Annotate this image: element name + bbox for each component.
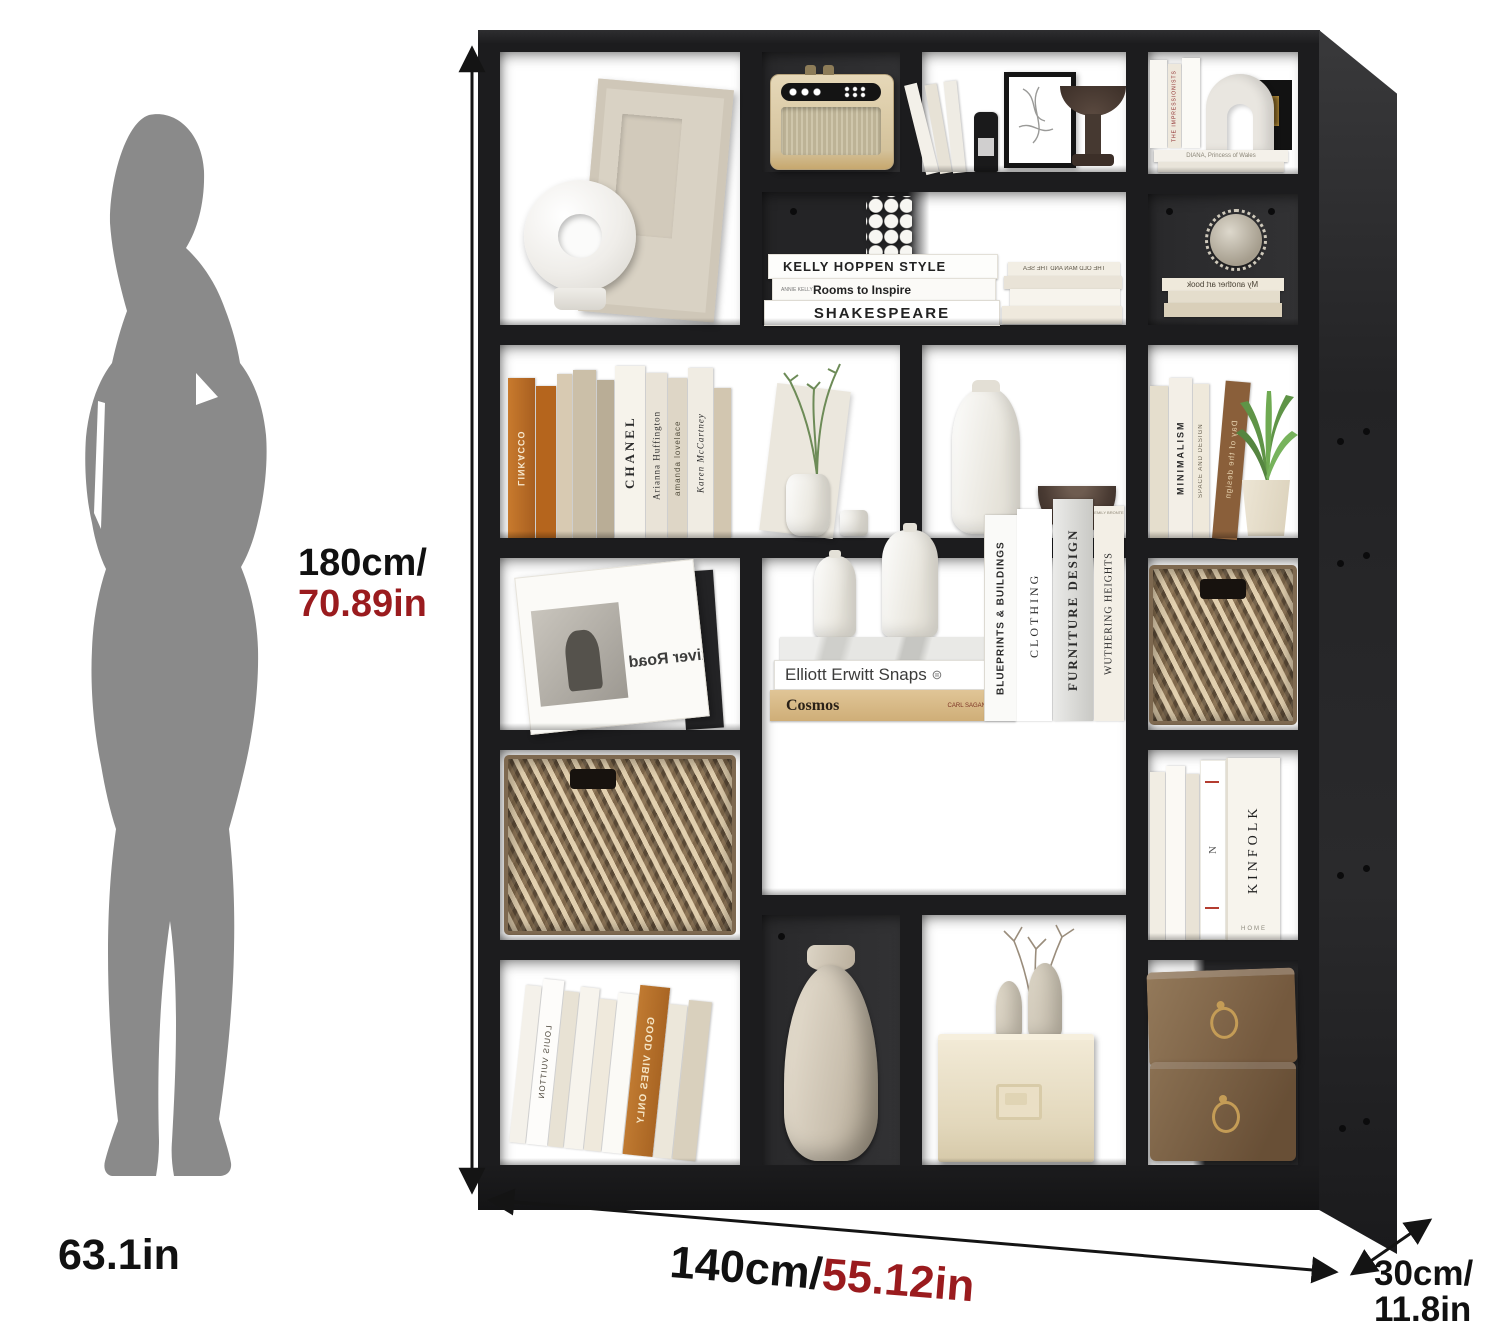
aloe-plant — [1232, 373, 1302, 483]
book-spine-karen: Karen McCartney — [688, 368, 713, 538]
depth-imperial: 11.8in — [1374, 1292, 1473, 1328]
book-spine-chanel: CHANEL — [615, 366, 645, 538]
wicker-basket — [1149, 565, 1297, 725]
width-dimension-label: 140cm/55.12in — [668, 1238, 976, 1311]
book-spine-old-man: THE OLD MAN AND THE SEA — [1008, 262, 1120, 276]
book-spine-minimalism: MINIMALISM — [1169, 378, 1192, 538]
book-spine-furniture: FURNITURE DESIGN — [1053, 499, 1093, 721]
cell-kinfolk-books: N KINFOLK HOME — [1148, 750, 1298, 940]
black-bottle — [974, 112, 998, 172]
small-plant-vase — [786, 474, 830, 536]
plant-pot — [1236, 480, 1296, 536]
cell-minimalism-plant: MINIMALISM SPACE AND DESIGN Day of the d… — [1148, 345, 1298, 538]
book-spine-linkacco: LINKACCO — [508, 378, 535, 538]
fabric-storage-box — [938, 1034, 1094, 1162]
box-label-slot — [996, 1084, 1042, 1120]
leaning-book-group: LOUIS VUITTON GOOD VIBES ONLY — [509, 953, 748, 1165]
book-spine-bronte: EMILY BRONTE — [1094, 510, 1124, 515]
wicker-basket — [504, 755, 736, 935]
cell-twig-box — [922, 915, 1126, 1165]
book-spine-n: N — [1201, 761, 1225, 939]
cell-spiky-ornament: My another art book — [1148, 194, 1298, 325]
cell-radio — [762, 52, 900, 172]
product-dimension-image: { "annotations": { "height": {"metric": … — [0, 0, 1500, 1337]
book-spine-kinfolk: KINFOLK — [1228, 758, 1280, 940]
book-spine-rooms-author: ANNIE KELLY — [773, 279, 995, 300]
twig-vase-small — [996, 981, 1022, 1039]
cell-stacked-boxes — [1148, 960, 1298, 1165]
bubble-candle — [866, 196, 912, 258]
brass-ring-pull — [1210, 1006, 1239, 1039]
radio — [770, 74, 894, 170]
cell-arch-sculpture: THE IMPRESSIONISTS DIANA, Princess of Wa… — [1148, 52, 1298, 174]
height-metric: 180cm/ — [298, 543, 427, 584]
radio-knob — [823, 65, 834, 75]
book-spine-impressionists: THE IMPRESSIONISTS — [1168, 64, 1181, 148]
person-height-label: 63.1in — [58, 1232, 180, 1278]
book-spine-sagan: CARL SAGAN — [770, 690, 1016, 721]
tall-urn-vase — [784, 945, 878, 1161]
magazine: River Road — [514, 559, 710, 735]
width-imperial: 55.12in — [820, 1248, 976, 1311]
book-spine-elliott: Elliott Erwitt Snaps ⊜ — [775, 661, 1009, 689]
cell-book-row: LINKACCO CHANEL Arianna Huffington amand… — [500, 345, 900, 538]
urchin-ornament — [1210, 214, 1262, 266]
height-dimension-label: 180cm/ 70.89in — [298, 543, 427, 625]
width-metric: 140cm/ — [668, 1236, 824, 1299]
radio-knob — [805, 65, 816, 75]
brown-box-bottom — [1150, 1062, 1296, 1161]
cell-basket-left — [500, 750, 740, 940]
book-spine-arianna: Arianna Huffington — [646, 373, 667, 538]
tall-white-vase — [952, 388, 1020, 534]
cell-magazine: River Road — [500, 558, 740, 730]
twig-vase-large — [1028, 963, 1062, 1039]
brass-ring-pull — [1212, 1101, 1240, 1133]
pedestal-bowl — [1060, 86, 1126, 172]
book-spine-blueprints: BLUEPRINTS & BUILDINGS — [985, 515, 1017, 721]
cell-book-stacks: KELLY HOPPEN STYLE Rooms to Inspire ANNI… — [762, 192, 1126, 325]
brown-box-top — [1146, 967, 1297, 1067]
bottle-vase-small — [814, 556, 856, 638]
cell-tall-vase — [762, 915, 900, 1165]
book-spine-kelly-hoppen: KELLY HOPPEN STYLE — [769, 255, 997, 278]
basket-handle — [570, 769, 616, 789]
bottle-vase-large — [882, 530, 938, 638]
book-spine-space-design: SPACE AND DESIGN — [1193, 384, 1209, 538]
bookshelf-side-panel — [1319, 30, 1397, 1254]
height-imperial: 70.89in — [298, 584, 427, 625]
marble-book — [780, 637, 992, 662]
radio-grill — [781, 107, 881, 155]
cell-leaning-books: LOUIS VUITTON GOOD VIBES ONLY — [500, 960, 740, 1165]
book-spine-wuthering: WUTHERING HEIGHTS — [1094, 506, 1124, 721]
book-spine-amanda: amanda lovelace — [668, 378, 687, 538]
depth-dimension-label: 30cm/ 11.8in — [1374, 1256, 1473, 1327]
radio-control-strip — [781, 83, 881, 101]
book-spine-kinfolk-home: HOME — [1228, 926, 1280, 932]
plant-sprigs — [772, 355, 862, 475]
ring-vase — [524, 180, 636, 318]
arch-sculpture — [1206, 74, 1274, 152]
basket-handle — [1200, 579, 1246, 599]
cell-basket-right — [1148, 558, 1298, 730]
person-silhouette — [6, 105, 318, 1217]
cell-center-display: Elliott Erwitt Snaps ⊜ Cosmos CARL SAGAN… — [762, 558, 1126, 895]
book-spine-another-art: My another art book — [1162, 278, 1284, 291]
book-spine-clothing: CLOTHING — [1017, 509, 1052, 721]
book-spine-diana: DIANA, Princess of Wales — [1154, 150, 1288, 162]
depth-metric: 30cm/ — [1374, 1256, 1473, 1292]
cell-frame-and-bowl — [922, 52, 1126, 172]
cell-frame-ring-vase — [500, 52, 740, 325]
magazine-title: River Road — [623, 596, 709, 723]
